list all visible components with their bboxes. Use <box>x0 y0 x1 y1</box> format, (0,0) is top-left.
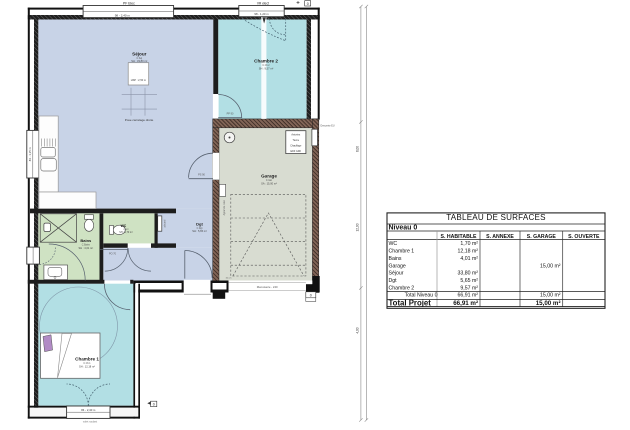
svg-text:0: 0 <box>153 403 155 407</box>
svg-text:10 cm: 10 cm <box>226 278 232 280</box>
svg-text:Séjour: Séjour <box>389 271 404 277</box>
svg-text:PP 90: PP 90 <box>227 112 234 115</box>
svg-text:Bains: Bains <box>80 238 92 243</box>
svg-text:84 - 1,15 m: 84 - 1,15 m <box>28 146 32 161</box>
svg-text:0: 0 <box>310 294 312 298</box>
svg-text:SH : 1,70 m²: SH : 1,70 m² <box>119 231 133 234</box>
svg-text:15,00 m²: 15,00 m² <box>540 292 561 298</box>
svg-text:placard: placard <box>164 219 167 227</box>
svg-text:Arrivées: Arrivées <box>291 134 301 137</box>
svg-text:5,65 m²: 5,65 m² <box>460 278 478 284</box>
svg-text:Garage: Garage <box>261 173 277 178</box>
svg-text:Pose carrelage droite: Pose carrelage droite <box>125 118 154 122</box>
svg-text:9,57 m²: 9,57 m² <box>460 286 478 292</box>
svg-text:volet roulant: volet roulant <box>83 420 97 424</box>
svg-text:SA : 15,00 m²: SA : 15,00 m² <box>261 182 277 186</box>
svg-text:TABLEAU DE SURFACES: TABLEAU DE SURFACES <box>446 213 546 222</box>
svg-text:PF Elec: PF Elec <box>123 2 135 6</box>
svg-text:Dgt: Dgt <box>196 221 203 226</box>
svg-text:84 - 2,40 m: 84 - 2,40 m <box>81 408 96 412</box>
svg-text:SH : 9,57 m²: SH : 9,57 m² <box>259 67 274 71</box>
svg-text:Chambre 2: Chambre 2 <box>389 286 415 292</box>
svg-text:Chambre 1: Chambre 1 <box>75 357 99 362</box>
svg-text:EDF GDF: EDF GDF <box>291 150 302 153</box>
svg-text:Chauffage: Chauffage <box>290 144 302 147</box>
svg-text:WC: WC <box>121 224 127 228</box>
svg-text:12,18 m²: 12,18 m² <box>458 248 479 254</box>
svg-text:Chambre 1: Chambre 1 <box>389 248 415 254</box>
svg-text:HSP : 2,50 m: HSP : 2,50 m <box>131 78 146 82</box>
svg-text:33,80 m²: 33,80 m² <box>458 271 479 277</box>
svg-text:Total Niveau 0: Total Niveau 0 <box>405 292 438 298</box>
svg-text:1,70 m²: 1,70 m² <box>460 241 478 247</box>
svg-text:Chambre 2: Chambre 2 <box>254 59 278 64</box>
svg-text:Menuiserie - 240: Menuiserie - 240 <box>257 285 278 289</box>
svg-text:98 - 1,20 m: 98 - 1,20 m <box>254 12 269 16</box>
svg-text:Garage: Garage <box>389 263 406 269</box>
svg-text:Tierce: Tierce <box>293 139 300 142</box>
svg-text:4,00: 4,00 <box>355 327 359 333</box>
svg-text:98 - 2,40 m: 98 - 2,40 m <box>115 14 131 18</box>
svg-text:PS 90: PS 90 <box>198 174 205 177</box>
svg-text:4,01 m²: 4,01 m² <box>460 256 478 262</box>
svg-text:15,00 m²: 15,00 m² <box>540 263 561 269</box>
svg-text:S. OUVERTE: S. OUVERTE <box>568 234 600 240</box>
svg-text:S. HABITABLE: S. HABITABLE <box>441 234 477 240</box>
svg-text:0: 0 <box>307 2 309 6</box>
svg-text:Agrandis. Elec: Agrandis. Elec <box>223 199 226 215</box>
svg-text:66,91 m²: 66,91 m² <box>458 292 479 298</box>
svg-text:12,00: 12,00 <box>355 223 359 231</box>
svg-text:Dgt: Dgt <box>389 278 398 284</box>
svg-text:S. ANNEXE: S. ANNEXE <box>486 234 514 240</box>
svg-text:Total Projet: Total Projet <box>389 298 432 307</box>
svg-text:Séjour: Séjour <box>132 51 147 56</box>
svg-text:Descente EU: Descente EU <box>321 125 335 128</box>
svg-text:VR élect: VR élect <box>257 1 269 5</box>
svg-text:S. GARAGE: S. GARAGE <box>527 234 557 240</box>
svg-text:SH : 5,65 m²: SH : 5,65 m² <box>192 229 207 233</box>
svg-text:WC: WC <box>389 241 398 247</box>
svg-text:SH : 4,01 m²: SH : 4,01 m² <box>79 246 94 250</box>
svg-text:PO 70: PO 70 <box>109 252 117 255</box>
svg-text:SH : 12,18 m²: SH : 12,18 m² <box>79 365 95 369</box>
svg-text:8,00: 8,00 <box>355 146 359 152</box>
svg-text:Bains: Bains <box>389 256 402 262</box>
svg-text:Niveau 0: Niveau 0 <box>389 224 418 231</box>
